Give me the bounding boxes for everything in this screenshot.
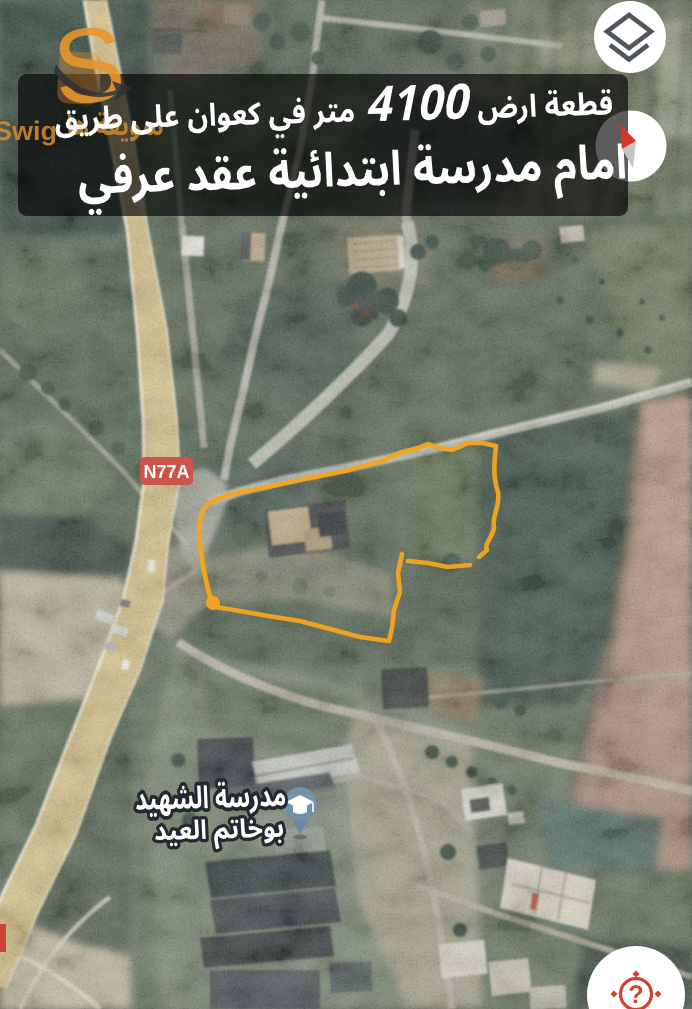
svg-text:Swig: Swig (0, 116, 57, 146)
svg-text:?: ? (628, 981, 643, 1009)
svg-text:S: S (48, 4, 131, 129)
svg-text:N77A: N77A (143, 462, 189, 482)
